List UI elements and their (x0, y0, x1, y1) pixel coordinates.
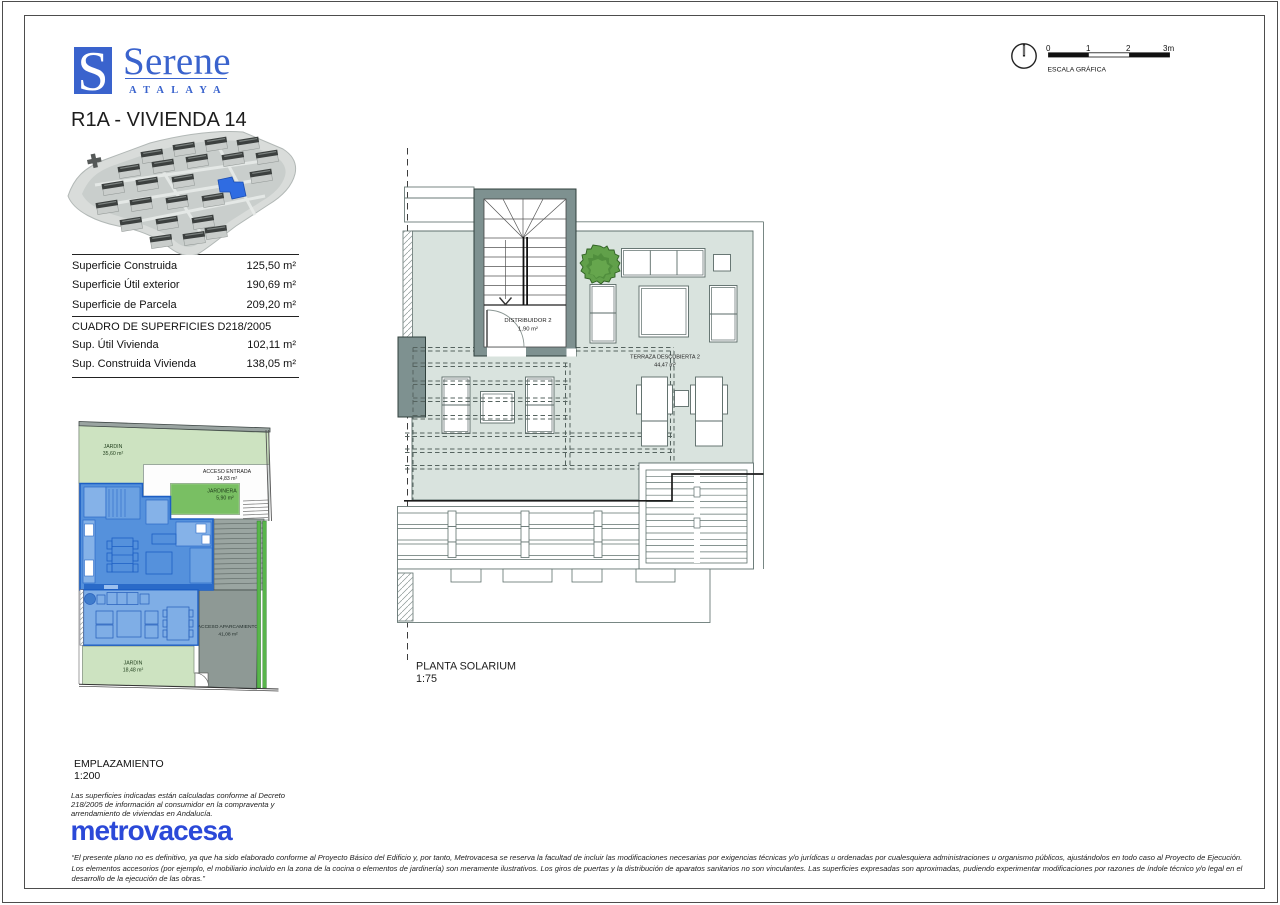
svg-text:3m: 3m (1163, 44, 1174, 53)
svg-text:JARDIN: JARDIN (124, 661, 143, 667)
svg-text:0: 0 (1046, 44, 1051, 53)
svg-text:1,90 m²: 1,90 m² (518, 327, 538, 333)
svg-text:41,08 m²: 41,08 m² (218, 632, 238, 638)
svg-text:DISTRIBUIDOR 2: DISTRIBUIDOR 2 (504, 318, 551, 324)
svg-text:2: 2 (1126, 44, 1131, 53)
svg-text:14,83 m²: 14,83 m² (217, 476, 238, 482)
svg-text:PLANTA SOLARIUM: PLANTA SOLARIUM (416, 661, 516, 673)
svg-text:JARDIN: JARDIN (104, 444, 123, 450)
svg-text:TERRAZA DESCUBIERTA 2: TERRAZA DESCUBIERTA 2 (630, 355, 700, 361)
svg-text:ESCALA GRÁFICA: ESCALA GRÁFICA (1048, 65, 1107, 74)
svg-text:35,60 m²: 35,60 m² (103, 451, 124, 457)
svg-text:18,48 m²: 18,48 m² (123, 668, 144, 674)
svg-text:1:75: 1:75 (416, 673, 437, 685)
svg-text:ACCESO ENTRADA: ACCESO ENTRADA (203, 469, 252, 475)
svg-text:1: 1 (1086, 44, 1091, 53)
svg-text:JARDINERA: JARDINERA (207, 489, 237, 495)
svg-text:ACCESO APARCAMIENTO: ACCESO APARCAMIENTO (198, 624, 259, 630)
svg-text:44,47 m²: 44,47 m² (654, 363, 676, 369)
svg-text:5,90 m²: 5,90 m² (216, 496, 234, 502)
